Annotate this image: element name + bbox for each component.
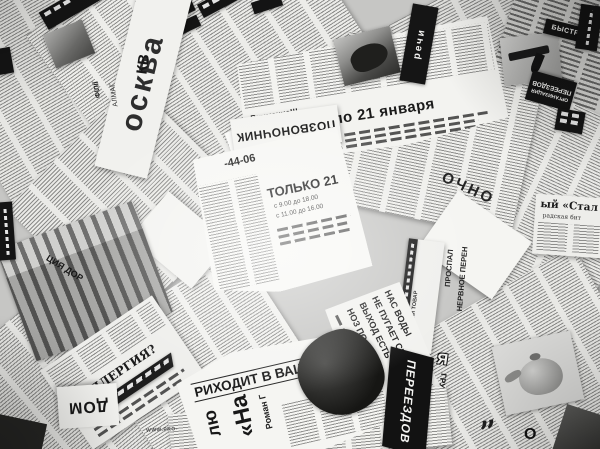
white-dash-texture (585, 10, 593, 45)
roman-text: Роман Г (257, 393, 275, 430)
pereezdov-banner: ПЕРЕЕЗДОВ (382, 346, 434, 449)
ya-text: Я (436, 350, 449, 368)
filii-text: ФІЛІЇ (93, 81, 102, 99)
ciya-dor-text: ЦИЯ ДОР (44, 253, 84, 283)
nervnoe-text: НЕРВНОЕ ПЕРЕН (455, 246, 470, 312)
stalingrad-article-scrap: ый «Стал радская бит (532, 194, 600, 259)
gru-text: ГРУ (437, 373, 448, 389)
newsprint-columns (536, 222, 600, 254)
big-o-fragment: О (524, 426, 536, 444)
rechi-text: речи (411, 28, 427, 61)
lyu-text: лю (199, 408, 225, 439)
black-header-chip (554, 108, 585, 135)
na-quote-text: «На (225, 393, 261, 440)
white-dash-texture (561, 111, 581, 118)
white-dash-texture (560, 118, 580, 125)
newspaper-collage-photo: осква КВ ФІЛІЇ АЛМАГ Внимание!!! с 18 по… (0, 0, 600, 449)
typewriter-silhouette (347, 38, 392, 76)
pereezdov-banner-text: ПЕРЕЕЗДОВ (397, 358, 418, 445)
prospal-text: ПРОСПАЛ (443, 249, 455, 287)
dom-text: ДОМ (67, 396, 108, 417)
kettle-body (516, 354, 567, 399)
phone-number: -44-06 (223, 152, 257, 170)
ciya-dor-fragment: ЦИЯ ДОР (44, 258, 114, 288)
ochno-fragment: ОЧНО (440, 180, 520, 230)
dom-scrap: ДОМ (57, 383, 120, 429)
big-o-text: О (524, 426, 536, 443)
filii-almag-fragment: ФІЛІЇ АЛМАГ (88, 68, 156, 136)
stalingrad-headline: ый «Стал (540, 198, 598, 214)
stalingrad-subline: радская бит (542, 212, 581, 222)
white-dash-texture (3, 207, 9, 255)
website-fragment: WWW.PRO- (146, 417, 179, 437)
almag-text: АЛМАГ (109, 83, 119, 107)
website-text: WWW.PRO- (146, 426, 178, 434)
